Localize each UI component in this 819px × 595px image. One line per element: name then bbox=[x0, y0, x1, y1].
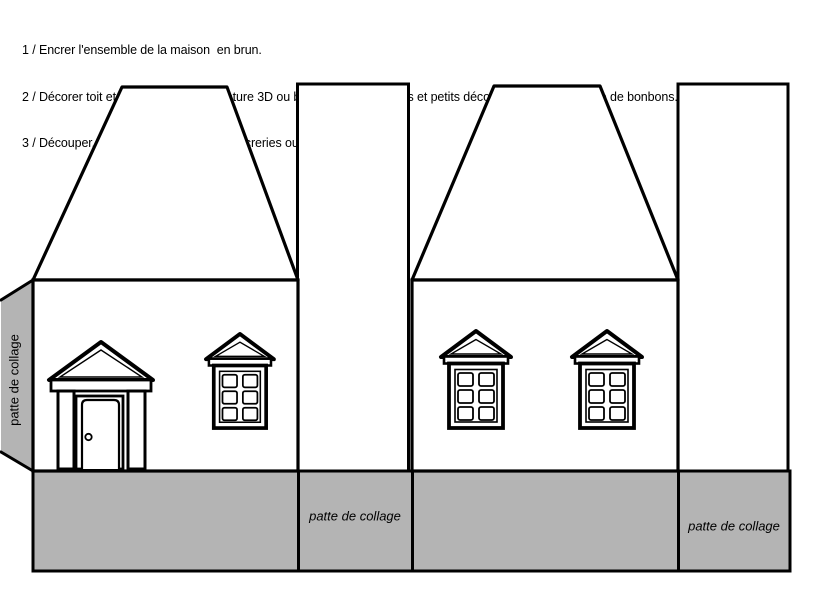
glue-tab-left-label: patte de collage bbox=[7, 334, 22, 426]
door-knob bbox=[85, 434, 91, 440]
glue-tab-right-label: patte de collage bbox=[688, 519, 780, 534]
door-entablature bbox=[51, 380, 151, 391]
side-panel-strip-middle bbox=[298, 84, 409, 471]
craft-template-page: 1 / Encrer l'ensemble de la maison en br… bbox=[0, 0, 819, 595]
house-template-drawing bbox=[0, 0, 819, 595]
side-panel-strip-right bbox=[678, 84, 788, 471]
roof-panel-2 bbox=[412, 86, 678, 280]
glue-tab-middle-label: patte de collage bbox=[309, 509, 401, 524]
door-column-right bbox=[128, 391, 145, 469]
roof-panel-1 bbox=[33, 87, 298, 280]
door-column-left bbox=[58, 391, 74, 469]
